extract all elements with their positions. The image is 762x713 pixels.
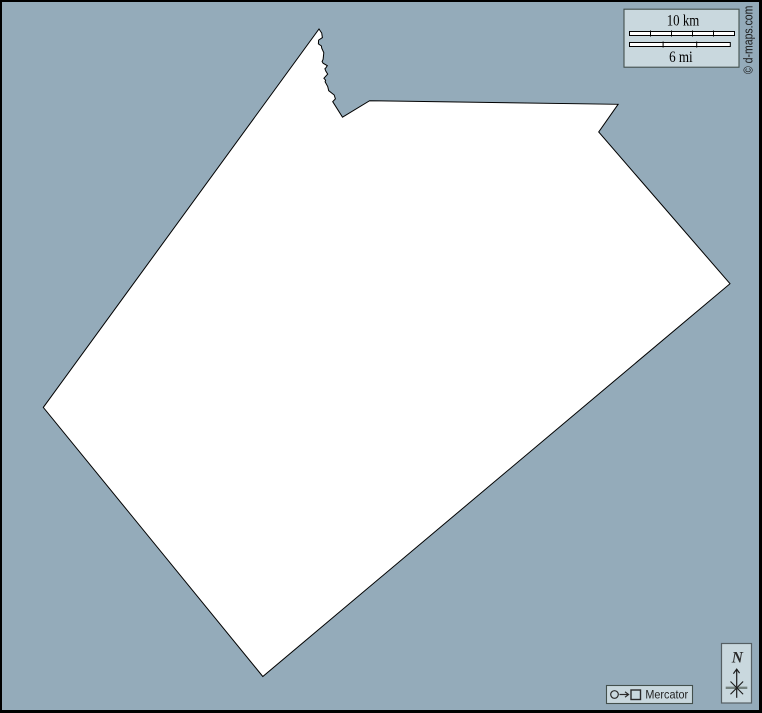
svg-text:10 km: 10 km [667, 13, 700, 30]
svg-text:N: N [731, 649, 744, 666]
svg-text:© d-maps.com: © d-maps.com [741, 6, 756, 74]
svg-text:6 mi: 6 mi [669, 49, 693, 66]
svg-text:Mercator: Mercator [645, 688, 688, 702]
